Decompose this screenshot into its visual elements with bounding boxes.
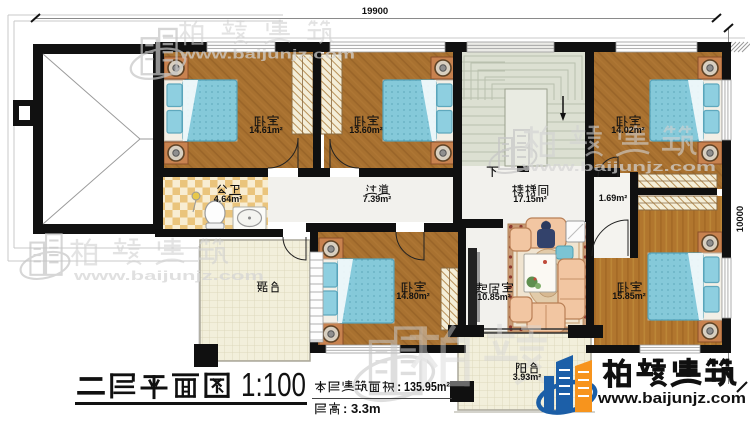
svg-text:www.baijunjz.com: www.baijunjz.com: [72, 269, 264, 283]
svg-text:www.baijunjz.com: www.baijunjz.com: [520, 159, 716, 174]
svg-text::: :: [397, 379, 401, 394]
svg-text:1.69m²: 1.69m²: [599, 193, 628, 203]
svg-text:13.60m²: 13.60m²: [349, 125, 383, 135]
svg-text:4.64m²: 4.64m²: [214, 194, 243, 204]
svg-text:7.39m²: 7.39m²: [363, 194, 392, 204]
svg-text:: 3.3m: : 3.3m: [343, 401, 381, 416]
svg-text:www.baijunjz.com: www.baijunjz.com: [178, 47, 355, 62]
svg-text:15.85m²: 15.85m²: [612, 291, 646, 301]
svg-text:3.93m²: 3.93m²: [513, 372, 542, 382]
svg-text:19900: 19900: [362, 6, 388, 17]
svg-text:17.15m²: 17.15m²: [513, 194, 547, 204]
svg-text:14.02m²: 14.02m²: [611, 125, 645, 135]
svg-text:1:100: 1:100: [241, 366, 306, 403]
svg-text:10000: 10000: [735, 206, 746, 232]
svg-text:www.baijunjz.com: www.baijunjz.com: [597, 391, 746, 407]
svg-text:135.95m²: 135.95m²: [404, 379, 451, 394]
svg-text:10.85m²: 10.85m²: [477, 292, 511, 302]
svg-text:14.61m²: 14.61m²: [249, 125, 283, 135]
svg-text:14.80m²: 14.80m²: [396, 291, 430, 301]
